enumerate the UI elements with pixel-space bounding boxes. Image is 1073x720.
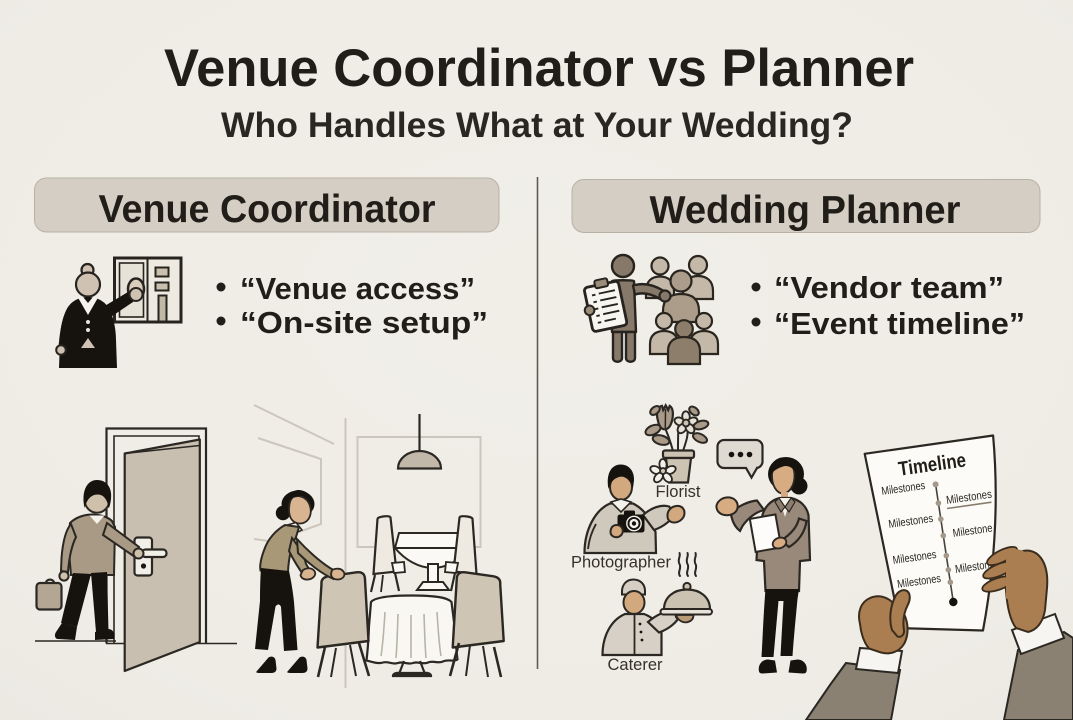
svg-text:“On-site setup”: “On-site setup” (240, 305, 488, 340)
svg-text:Who Handles What at Your Weddi: Who Handles What at Your Wedding? (221, 106, 853, 145)
svg-text:“Venue access”: “Venue access” (240, 271, 475, 306)
svg-text:“Vendor team”: “Vendor team” (774, 270, 1004, 305)
svg-text:Wedding Planner: Wedding Planner (650, 189, 961, 232)
svg-text:Venue Coordinator vs Planner: Venue Coordinator vs Planner (164, 39, 914, 98)
svg-text:Florist: Florist (656, 483, 701, 501)
svg-text:Venue Coordinator: Venue Coordinator (99, 188, 436, 231)
svg-text:Caterer: Caterer (607, 656, 663, 674)
svg-text:“Event timeline”: “Event timeline” (774, 306, 1025, 341)
svg-text:Photographer: Photographer (571, 554, 671, 572)
